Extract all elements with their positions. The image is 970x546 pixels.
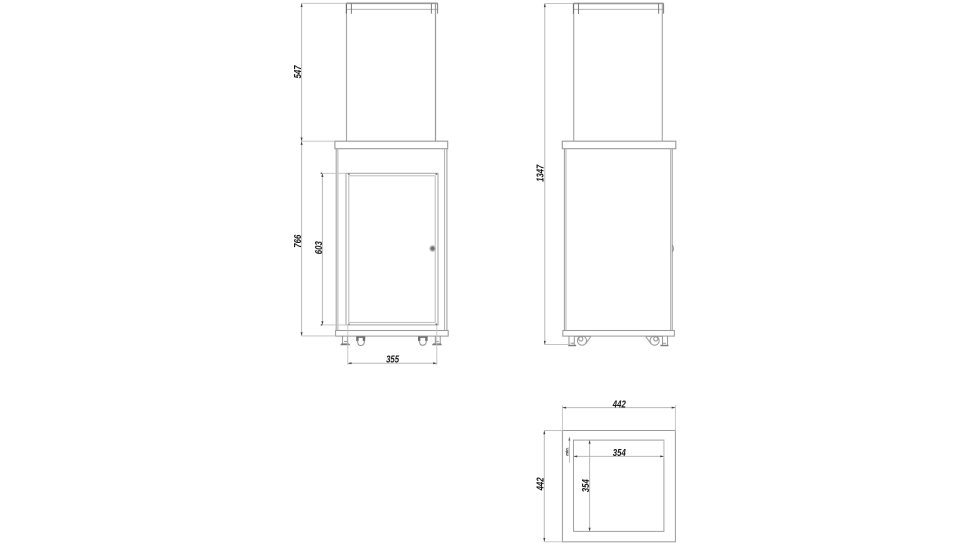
svg-text:442: 442 (612, 399, 626, 410)
svg-text:603: 603 (314, 241, 325, 254)
svg-text:1347: 1347 (536, 164, 547, 181)
svg-text:354: 354 (581, 479, 592, 492)
svg-text:354: 354 (613, 448, 626, 459)
svg-text:766: 766 (293, 234, 304, 247)
svg-text:355: 355 (386, 355, 399, 366)
svg-text:547: 547 (293, 65, 304, 78)
svg-text:442: 442 (535, 477, 546, 491)
svg-text:min.: min. (565, 447, 570, 456)
